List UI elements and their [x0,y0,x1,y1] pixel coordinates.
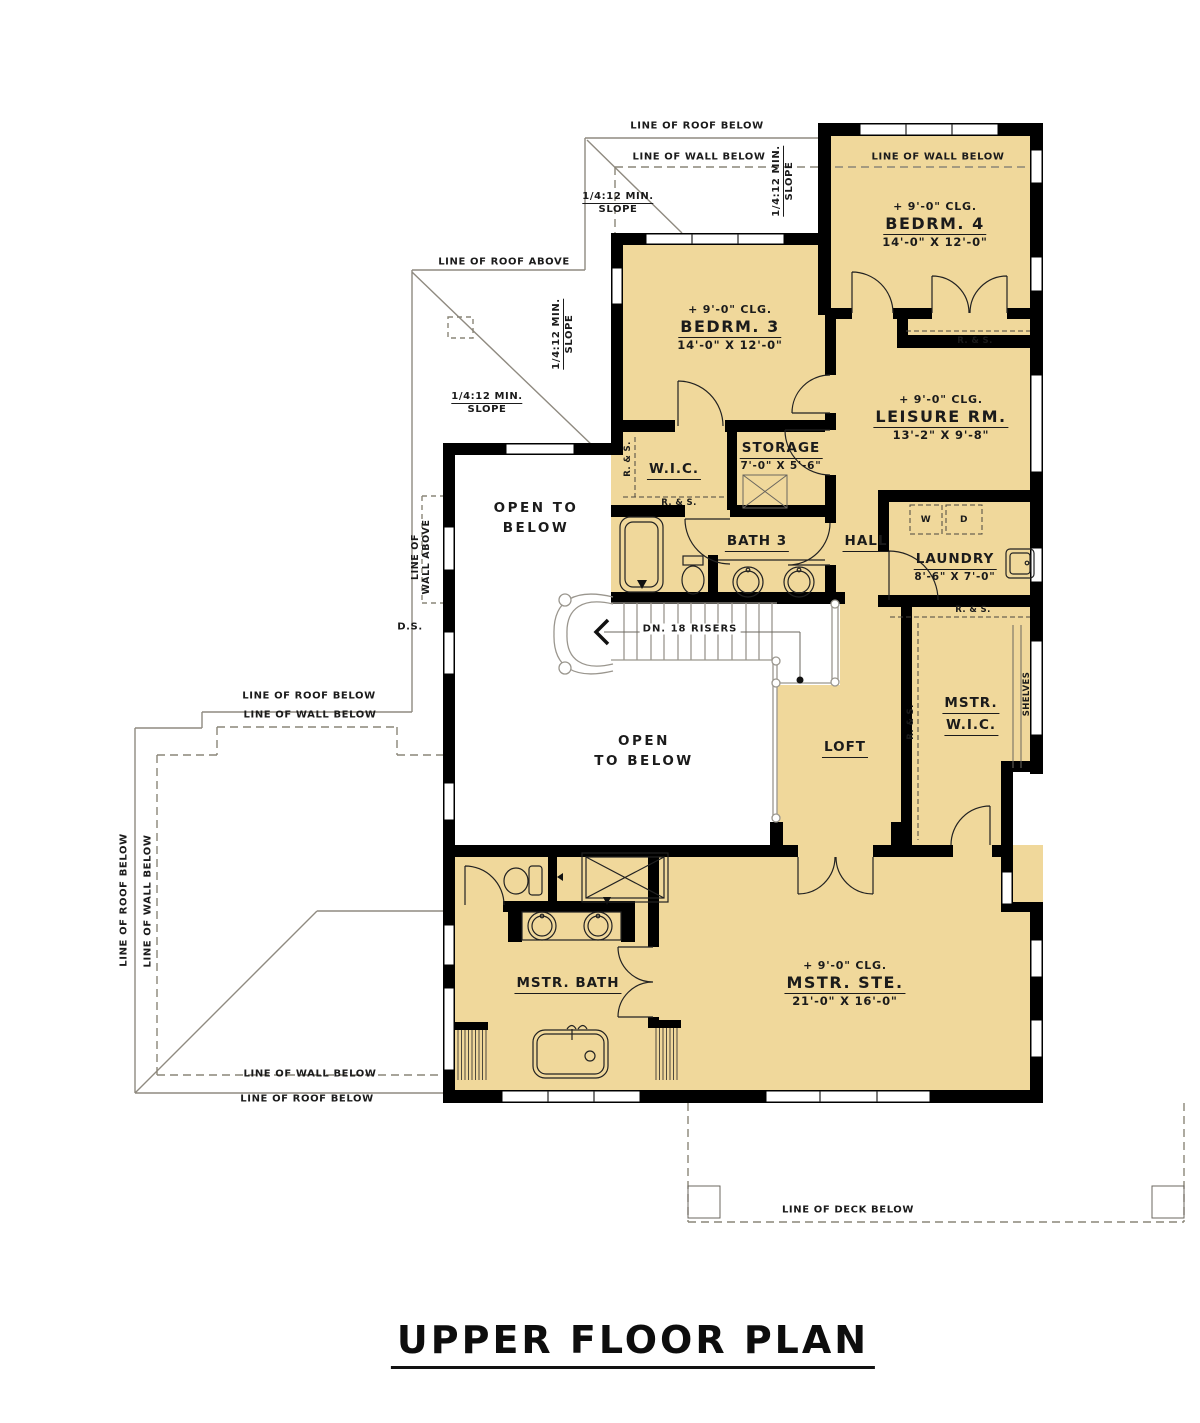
floor-plan-canvas: LINE OF ROOF BELOW LINE OF WALL BELOW LI… [0,0,1200,1423]
roof-slope-label-ne: 1/4:12 MIN.SLOPE [771,145,795,216]
stairs-label: DN. 18 RISERS [640,624,741,635]
page-title: UPPER FLOOR PLAN [391,1318,875,1369]
roof-slope-label-nw: 1/4:12 MIN.SLOPE [582,191,653,215]
room-label-loft: LOFT [822,736,868,758]
hatch-right [656,1028,677,1080]
room-label-mstr-wic: MSTR. W.I.C. [942,692,999,736]
line-of-roof-below-bottom: LINE OF ROOF BELOW [240,1094,373,1105]
open-to-below-upper: OPEN TOBELOW [494,498,579,538]
room-label-storage: STORAGE 7'-0" X 5'-6" [740,437,823,474]
room-label-bath3: BATH 3 [725,530,789,552]
room-label-mstr-bath: MSTR. BATH [514,972,621,994]
line-of-wall-below-bedrm4: LINE OF WALL BELOW [872,152,1005,163]
room-label-mstr-ste: + 9'-0" CLG. MSTR. STE. 21'-0" X 16'-0" [784,958,905,1009]
room-label-hall: HALL [843,530,890,552]
rs-wic-bottom: R. & S. [661,498,696,508]
shelves-label: SHELVES [1022,672,1032,717]
room-label-wic: W.I.C. [647,458,701,480]
rs-wic-left: R. & S. [623,441,633,476]
line-of-roof-below-left-v: LINE OF ROOF BELOW [119,833,130,966]
dryer-label: D [960,515,968,525]
room-label-bedrm3: + 9'-0" CLG. BEDRM. 3 14'-0" X 12'-0" [677,302,782,353]
rs-mstr-wic-left: R. & S. [906,704,916,739]
downspout-label: D.S. [397,622,423,633]
deck-posts [688,1186,1184,1218]
room-label-laundry: LAUNDRY 8'-6" X 7'-0" [914,548,997,585]
deck-outline [688,1103,1184,1222]
line-of-roof-above: LINE OF ROOF ABOVE [438,257,570,268]
line-of-wall-below-left-v: LINE OF WALL BELOW [143,835,154,968]
line-of-roof-below-left-h: LINE OF ROOF BELOW [242,691,375,702]
line-of-wall-above: LINE OFWALL ABOVE [410,519,432,594]
rs-bedrm4-closet: R. & S. [957,336,992,346]
room-label-bedrm4: + 9'-0" CLG. BEDRM. 4 14'-0" X 12'-0" [882,199,987,250]
line-of-deck-below: LINE OF DECK BELOW [778,1205,918,1216]
line-of-wall-below-top: LINE OF WALL BELOW [633,152,766,163]
line-of-wall-below-bottom: LINE OF WALL BELOW [244,1069,377,1080]
washer-label: W [921,515,932,525]
open-to-below-lower: OPENTO BELOW [594,731,693,771]
line-of-roof-below-top: LINE OF ROOF BELOW [630,121,763,132]
roof-slope-label-left: 1/4:12 MIN.SLOPE [451,391,522,415]
room-label-leisure: + 9'-0" CLG. LEISURE RM. 13'-2" X 9'-8" [873,392,1008,443]
line-of-wall-below-left-h: LINE OF WALL BELOW [244,710,377,721]
rs-mstr-wic-top: R. & S. [955,605,990,615]
roof-slope-label-mid: 1/4:12 MIN.SLOPE [551,298,575,369]
